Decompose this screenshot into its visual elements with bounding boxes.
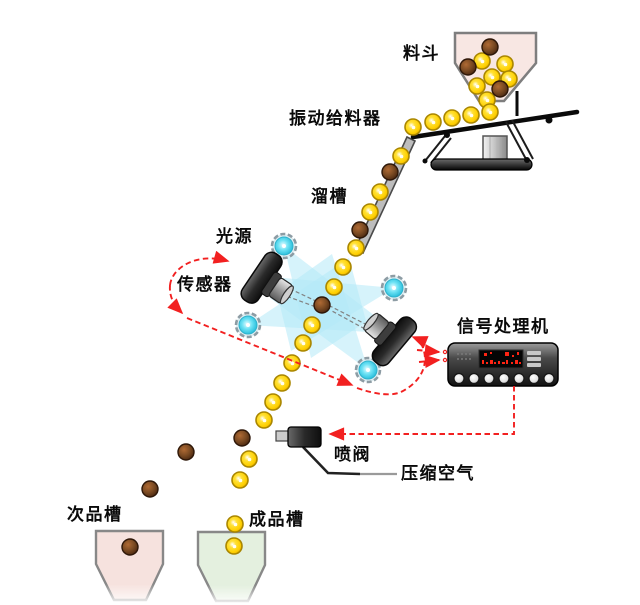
bad-ball: [122, 539, 138, 555]
bad-ball: [460, 59, 476, 75]
processor-button: [454, 374, 464, 384]
signal-processor-label: 信号处理机: [457, 318, 550, 335]
good-ball: [256, 412, 272, 428]
good-ball: [304, 317, 320, 333]
light: [382, 276, 406, 300]
valve-body: [288, 427, 321, 447]
good-ball: [425, 114, 441, 130]
processor-button: [499, 374, 509, 384]
good-ball: [274, 375, 290, 391]
good-ball: [469, 78, 485, 94]
good-ball: [444, 110, 460, 126]
good-ball: [362, 204, 378, 220]
valve-nozzle: [276, 431, 289, 441]
good-ball: [463, 107, 479, 123]
signal-processor-group: [448, 343, 558, 386]
reject-bin-label: 次品槽: [67, 506, 123, 523]
hopper-label: 料斗: [403, 45, 440, 62]
bad-ball: [178, 444, 194, 460]
bad-ball: [352, 222, 368, 238]
good-ball: [241, 451, 257, 467]
chute-label: 溜槽: [311, 188, 348, 205]
good-ball: [405, 119, 421, 135]
processor-display: [479, 350, 523, 368]
spray-valve-label: 喷阀: [334, 446, 371, 463]
bad-ball: [234, 430, 250, 446]
processor-button: [469, 374, 479, 384]
bad-ball: [382, 164, 398, 180]
processor-button: [544, 374, 554, 384]
feeder-base: [431, 159, 532, 170]
compressed-air-label: 压缩空气: [401, 465, 475, 482]
processor-button: [529, 374, 539, 384]
bad-ball: [482, 39, 498, 55]
bad-ball: [142, 481, 158, 497]
color-sorter-diagram: 料斗 振动给料器 溜槽 光源 传感器 信号处理机 喷阀 压缩空气 次品槽 成品槽: [0, 0, 640, 605]
good-ball: [348, 240, 364, 256]
bad-ball: [314, 297, 330, 313]
good-ball: [335, 259, 351, 275]
good-ball: [265, 394, 281, 410]
sensor-to-processor-line-2: [419, 360, 439, 362]
good-ball: [295, 335, 311, 351]
good-ball: [497, 56, 513, 72]
sensor-label: 传感器: [177, 276, 233, 293]
processor-menu-icon: [527, 351, 541, 367]
good-ball: [482, 104, 498, 120]
accept-bin-label: 成品槽: [249, 511, 305, 528]
good-ball: [232, 472, 248, 488]
good-ball: [393, 148, 409, 164]
flow-bottom-curve: [357, 388, 401, 394]
processor-to-valve-line: [330, 386, 514, 434]
processor-button: [514, 374, 524, 384]
light: [236, 313, 260, 337]
good-ball: [372, 184, 388, 200]
good-ball: [227, 516, 243, 532]
light-source-label: 光源: [216, 228, 253, 245]
vibrating-feeder-label: 振动给料器: [289, 110, 382, 127]
bad-ball: [492, 81, 508, 97]
processor-button: [484, 374, 494, 384]
good-ball: [326, 279, 342, 295]
flow-arc-right: [401, 337, 425, 392]
good-ball: [226, 538, 242, 554]
sensor-to-processor-line-1: [417, 350, 439, 352]
